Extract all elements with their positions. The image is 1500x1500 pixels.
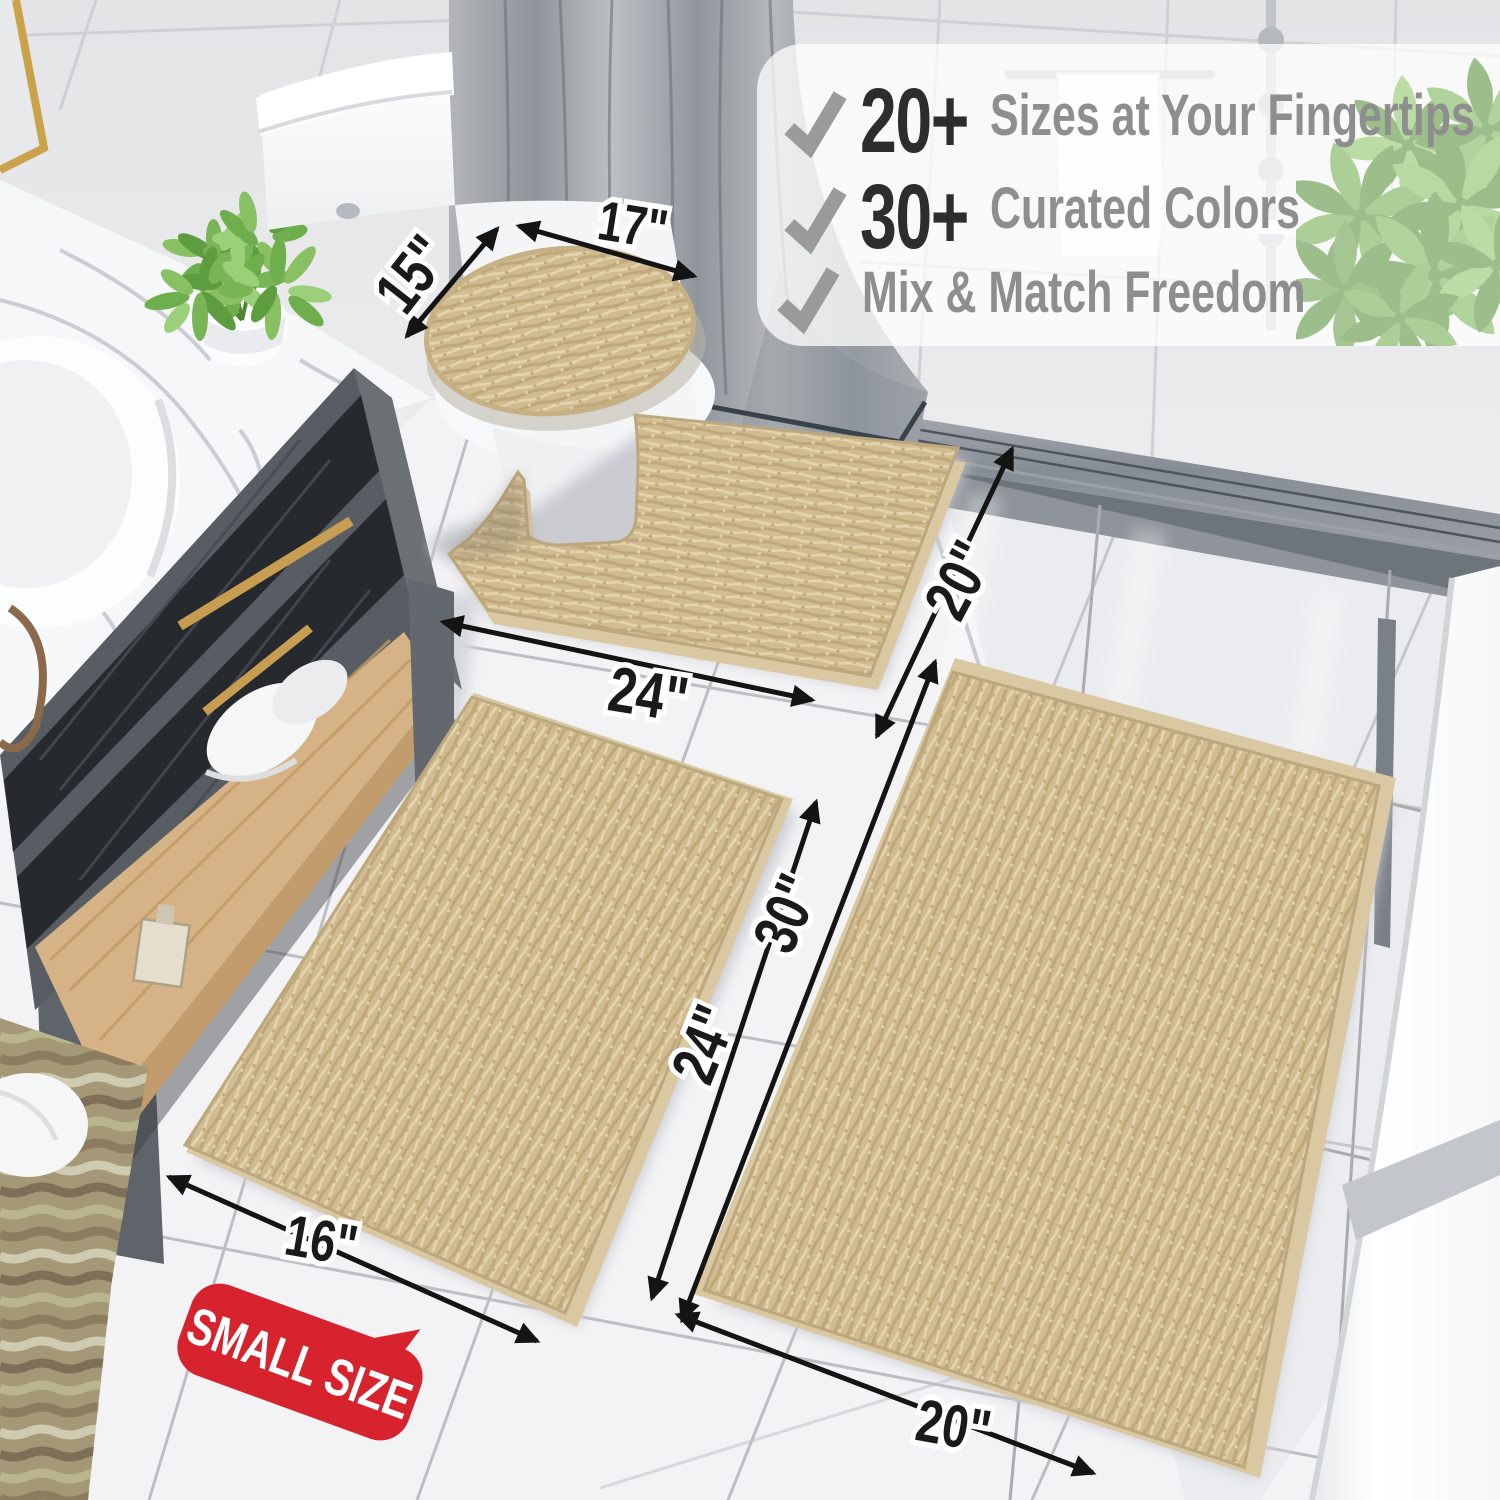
svg-text:16": 16" xyxy=(280,1203,362,1279)
svg-text:Sizes at Your Fingertips: Sizes at Your Fingertips xyxy=(990,83,1475,148)
svg-text:24": 24" xyxy=(604,654,693,737)
svg-text:17": 17" xyxy=(594,189,672,262)
svg-text:Mix & Match Freedom: Mix & Match Freedom xyxy=(862,260,1306,325)
svg-text:Curated Colors: Curated Colors xyxy=(990,176,1300,241)
svg-text:20+: 20+ xyxy=(860,68,968,171)
svg-text:20": 20" xyxy=(911,1387,996,1466)
svg-text:30+: 30+ xyxy=(860,164,968,267)
